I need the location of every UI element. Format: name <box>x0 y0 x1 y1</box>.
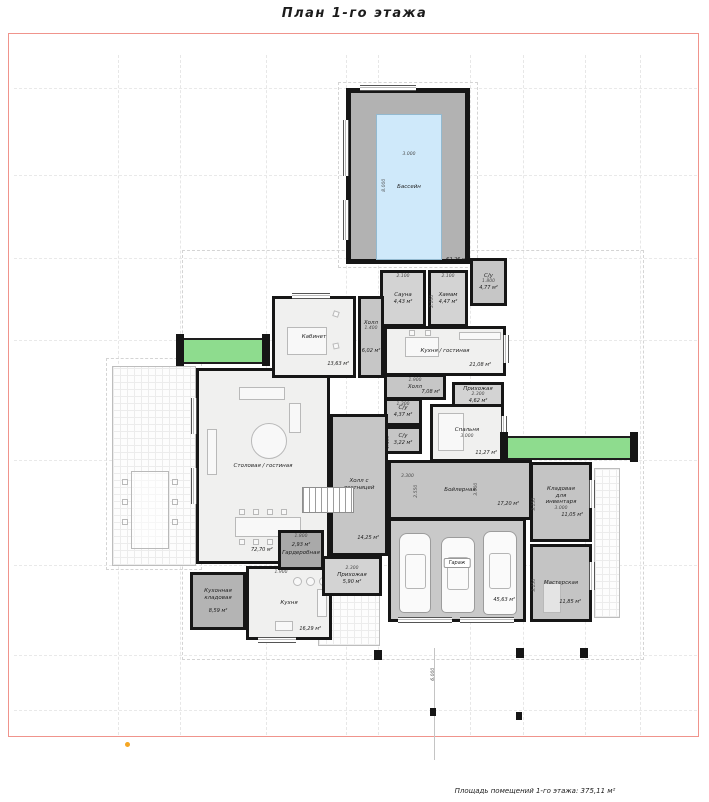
sofa <box>289 403 301 433</box>
room-area: 13,63 м² <box>327 362 349 368</box>
planter-left <box>180 338 266 364</box>
wall-pillar <box>580 648 588 658</box>
room-area: 21,08 м² <box>469 363 491 369</box>
car-roof <box>489 553 511 589</box>
desk <box>287 327 327 355</box>
total-area-caption: Площадь помещений 1-го этажа: 375,11 м² <box>370 787 700 795</box>
site-dimension-label: 6.000 <box>432 668 437 681</box>
room-label: Кухня <box>280 600 297 607</box>
room-area: 4,43 м² <box>394 300 413 306</box>
room-area: 17,20 м² <box>497 502 519 508</box>
room-storage: 3.150 Кладовая для инвентаря 3.000 11,05… <box>530 462 592 542</box>
window <box>503 335 509 363</box>
room-area: 4,37 м² <box>394 413 413 419</box>
room-label: Сауна <box>394 292 411 299</box>
chair <box>239 509 245 515</box>
room-label: Хамам <box>439 292 458 299</box>
window <box>191 468 197 504</box>
room-label: Гардеробная <box>282 550 320 557</box>
chair <box>253 509 259 515</box>
grid-line <box>14 710 697 711</box>
room-label: Кабинет <box>302 334 326 341</box>
terrace-right <box>594 468 620 618</box>
room-bedroom: Спальня 3.000 11,27 м² <box>430 404 504 462</box>
chair <box>267 509 273 515</box>
room-area: 2,93 м² <box>292 543 311 549</box>
room-label: Столовая / гостиная <box>234 463 293 470</box>
room-area: 5,90 м² <box>343 580 362 586</box>
pool-hall-area: 62,26 м² <box>446 258 468 264</box>
kitchen-counter <box>459 332 501 340</box>
room-wc-1: 1.300 С/у 4,37 м² <box>384 398 422 426</box>
chair <box>239 539 245 545</box>
workbench <box>543 583 561 613</box>
room-area: 72,70 м² <box>251 548 273 554</box>
room-garage: Гараж 45,63 м² <box>388 518 526 622</box>
room-wardrobe: 1.800 2,93 м² Гардеробная <box>278 530 324 570</box>
room-hammam: 2.100 2.100 Хамам 4,47 м² <box>428 270 468 327</box>
dimension-label: 3.150 <box>533 579 538 592</box>
garage-door <box>398 617 452 623</box>
dimension-label: 3.300 <box>401 475 414 480</box>
chair <box>332 310 340 318</box>
dimension-label: 1.900 <box>275 571 288 576</box>
window <box>191 398 197 434</box>
page-title: План 1-го этажа <box>0 6 709 21</box>
car <box>399 533 431 613</box>
room-label: С/у <box>399 405 408 412</box>
room-area: 14,25 м² <box>357 536 379 542</box>
room-pantry: Кухонная кладовая 8,59 м² <box>190 572 246 630</box>
room-area: 6,02 м² <box>362 349 381 355</box>
room-area: 3,22 м² <box>394 441 413 447</box>
room-area: 7,08 м² <box>422 390 441 396</box>
room-label: С/у <box>399 433 408 440</box>
dimension-label: 1.800 <box>295 535 308 540</box>
room-label: Кладовая для инвентаря <box>541 486 581 507</box>
wall-pillar <box>500 432 508 462</box>
terrace-table <box>131 471 169 549</box>
chair <box>281 509 287 515</box>
room-kitchen-living: Кухня / гостиная 21,08 м² <box>384 326 506 376</box>
room-boiler: 3.300 2.550 3.000 Бойлерная 17,20 м² <box>388 460 532 520</box>
terrace-chair <box>172 499 178 505</box>
terrace-chair <box>122 519 128 525</box>
room-area: 11,27 м² <box>475 451 497 457</box>
dimension-label: 2.100 <box>442 275 455 280</box>
dimension-label: 3.000 <box>461 435 474 440</box>
room-label: Прихожая <box>337 572 366 579</box>
pool-water: Бассейн 3.000 8.000 <box>376 114 442 260</box>
chair <box>267 539 273 545</box>
terrace-chair <box>172 519 178 525</box>
dimension-label: 2.100 <box>397 275 410 280</box>
car-roof <box>405 554 426 588</box>
room-area: 45,63 м² <box>493 598 515 604</box>
kitchen-island <box>275 621 293 631</box>
room-kitchen: 1.900 Кухня 16,29 м² <box>246 566 332 640</box>
window <box>343 200 349 240</box>
wall-pillar <box>630 432 638 462</box>
room-area: 4,77 м² <box>479 286 498 292</box>
room-wc-top: С/у 1.800 4,77 м² <box>470 258 507 306</box>
room-pool-hall: Бассейн 3.000 8.000 <box>346 88 470 264</box>
room-area: 11,85 м² <box>559 600 581 606</box>
room-label: Гараж <box>444 558 471 568</box>
window <box>589 562 595 590</box>
chair <box>425 330 431 336</box>
wall-pillar <box>516 648 524 658</box>
planter-right <box>506 436 636 460</box>
room-hall-mid: 1.900 Холл 7,08 м² <box>384 374 446 400</box>
room-area: 8,59 м² <box>209 609 228 615</box>
rug <box>251 423 287 459</box>
dimension-label: 2.100 <box>431 294 436 307</box>
dimension-label: 3.150 <box>533 498 538 511</box>
orange-marker-dot <box>125 742 130 747</box>
sideboard <box>207 429 217 475</box>
wall-pillar <box>176 334 184 366</box>
window <box>589 480 595 508</box>
wall-pillar <box>374 650 382 660</box>
room-label: Бойлерная <box>444 487 475 494</box>
window <box>343 120 349 176</box>
room-area: 4,47 м² <box>439 300 458 306</box>
dimension-label: 8.000 <box>383 179 388 192</box>
terrace-chair <box>122 479 128 485</box>
room-area: 16,29 м² <box>299 627 321 633</box>
room-label: Мастерская <box>544 580 578 587</box>
room-workshop: 3.150 Мастерская 11,85 м² <box>530 544 592 622</box>
wall-pillar <box>516 712 522 720</box>
room-area: 11,05 м² <box>561 513 583 519</box>
room-wc-2: 1.400 С/у 3,22 м² <box>384 426 422 454</box>
staircase <box>302 487 354 513</box>
room-hall-stairs: Холл с лестницей 14,25 м² <box>330 414 388 556</box>
terrace-left <box>112 366 196 566</box>
wall-pillar <box>430 708 436 716</box>
chair <box>253 539 259 545</box>
terrace-chair <box>172 479 178 485</box>
room-label: Спальня <box>455 427 479 434</box>
stove-burner <box>293 577 302 586</box>
dimension-label: 3.000 <box>403 153 416 158</box>
room-office: Кабинет 13,63 м² <box>272 296 356 378</box>
dimension-label: 2.550 <box>415 485 420 498</box>
stove-burner <box>306 577 315 586</box>
window <box>292 293 330 299</box>
room-sauna: 2.100 Сауна 4,43 м² <box>380 270 426 327</box>
room-entry: 2.300 Прихожая 5,90 м² <box>322 556 382 596</box>
room-label: Кухонная кладовая <box>200 588 236 602</box>
room-label: Бассейн <box>397 184 421 191</box>
room-hall-small: Холл 1.400 6,02 м² <box>358 296 384 378</box>
window <box>360 85 416 91</box>
car <box>441 537 475 613</box>
chair <box>332 342 339 349</box>
chair <box>409 330 415 336</box>
wall-pillar <box>262 334 270 366</box>
room-label: Холл <box>408 384 422 391</box>
room-label: Кухня / гостиная <box>420 348 469 355</box>
dimension-label: 2.300 <box>346 567 359 572</box>
garage-door <box>460 617 514 623</box>
window <box>258 637 296 643</box>
terrace-chair <box>122 499 128 505</box>
floor-plan-page: План 1-го этажа <box>0 0 709 802</box>
sofa <box>239 387 285 400</box>
dimension-label: 1.400 <box>365 327 378 332</box>
axis-line <box>434 648 435 760</box>
